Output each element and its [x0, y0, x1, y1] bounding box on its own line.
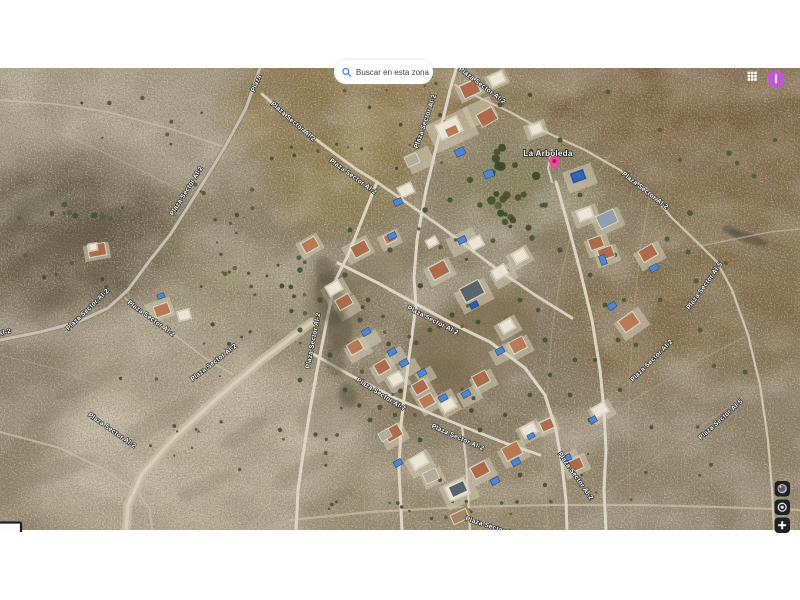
svg-text:Buscar en esta zona: Buscar en esta zona — [356, 68, 429, 77]
svg-text:La Arboleda: La Arboleda — [523, 149, 572, 158]
